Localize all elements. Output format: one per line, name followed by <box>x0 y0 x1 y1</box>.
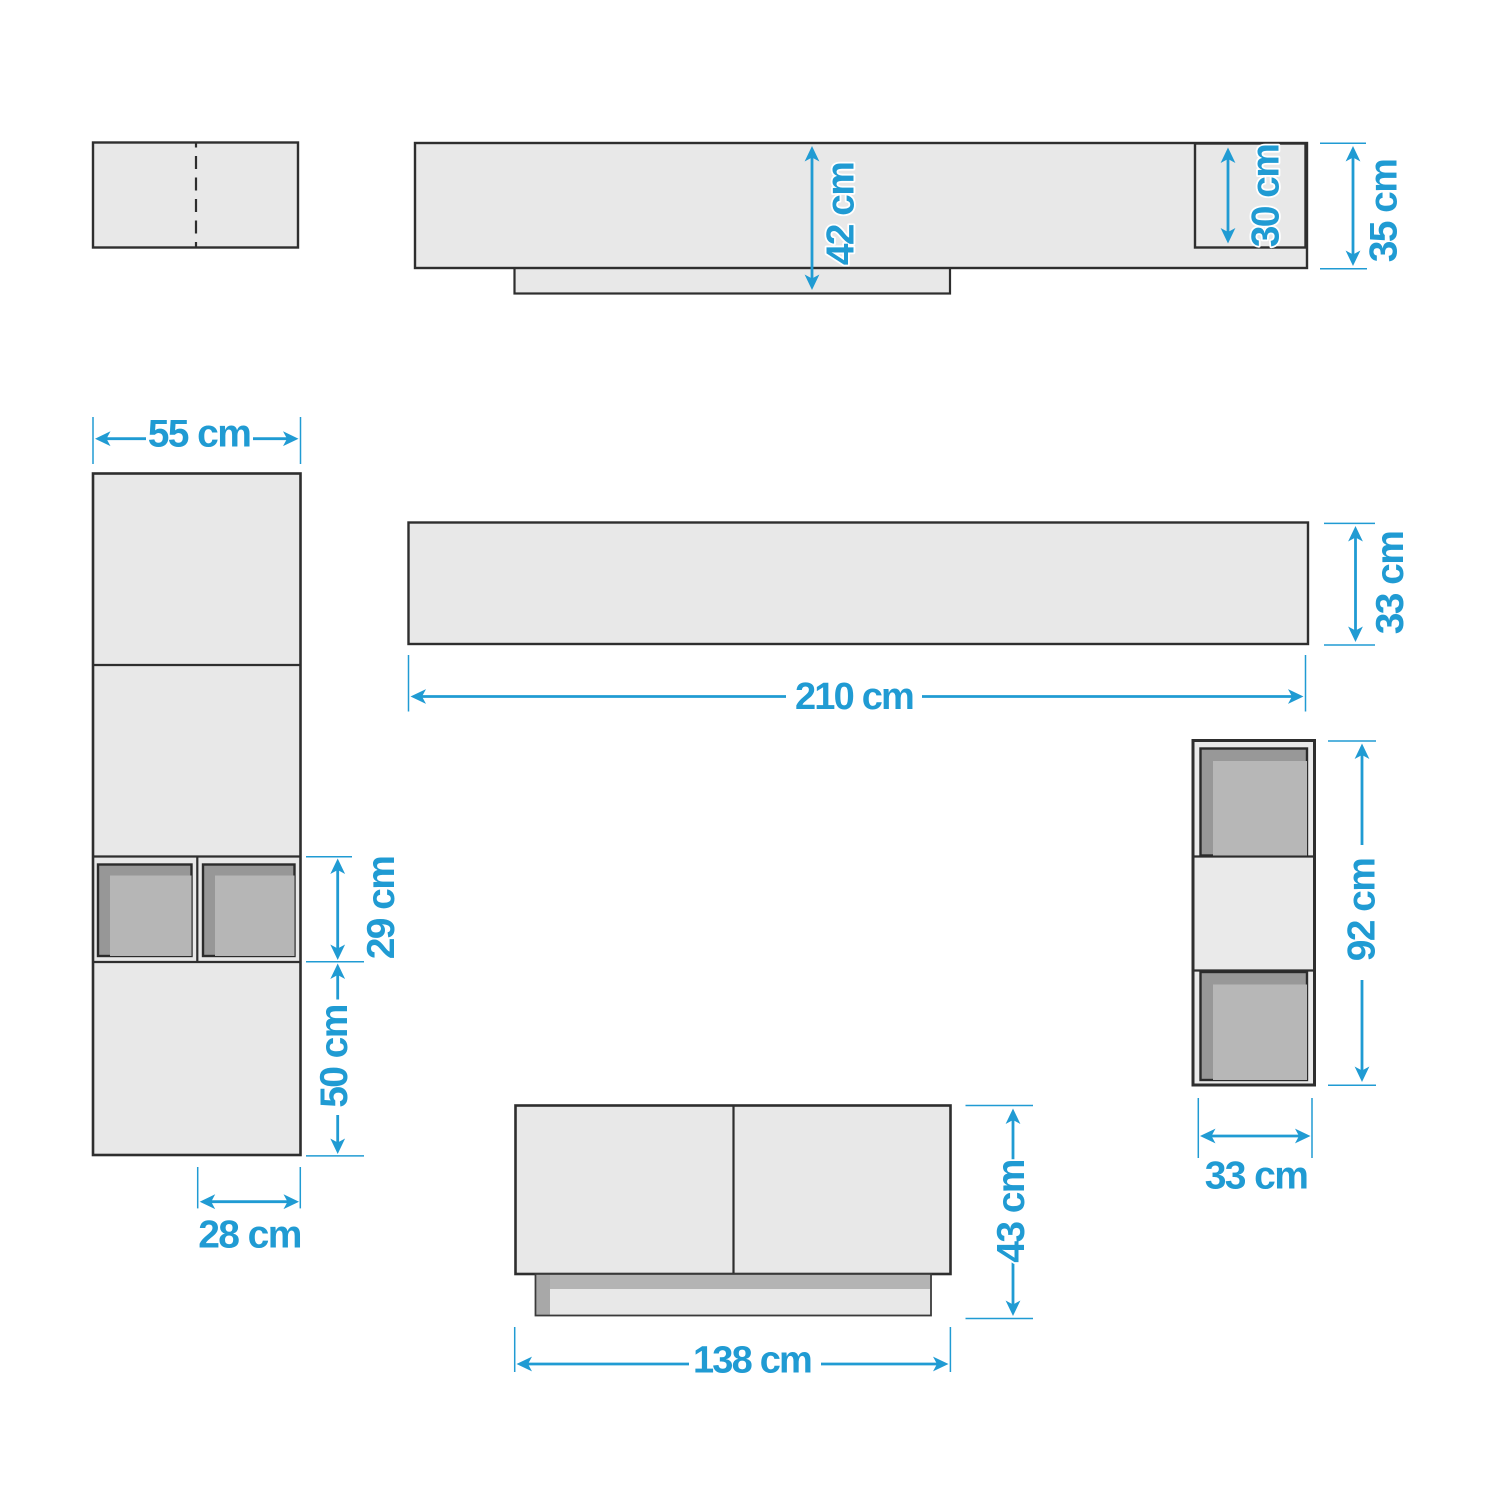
svg-text:92 cm: 92 cm <box>1341 859 1384 962</box>
svg-text:33 cm: 33 cm <box>1369 532 1412 635</box>
svg-text:28 cm: 28 cm <box>198 1214 301 1257</box>
svg-text:29 cm: 29 cm <box>360 857 403 960</box>
svg-text:42 cm: 42 cm <box>820 163 863 266</box>
svg-text:55 cm: 55 cm <box>148 413 251 456</box>
svg-text:50 cm: 50 cm <box>313 1005 356 1108</box>
svg-text:33 cm: 33 cm <box>1205 1155 1308 1198</box>
svg-text:30 cm: 30 cm <box>1245 145 1288 248</box>
svg-text:210 cm: 210 cm <box>795 676 913 718</box>
svg-text:43 cm: 43 cm <box>990 1160 1033 1263</box>
svg-text:138 cm: 138 cm <box>693 1340 811 1382</box>
svg-text:35 cm: 35 cm <box>1363 160 1406 263</box>
